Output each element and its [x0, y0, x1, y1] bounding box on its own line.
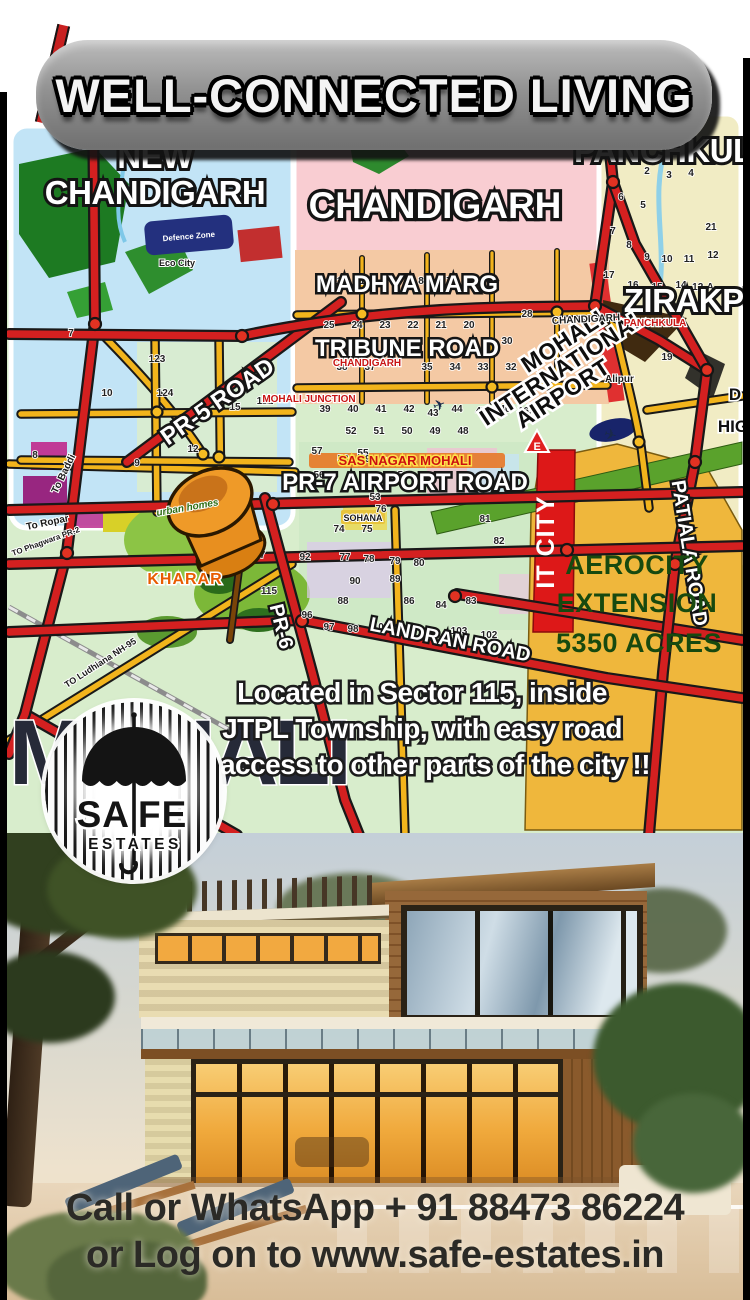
- sector-label: 4: [688, 168, 694, 179]
- balcony-fascia: [141, 1017, 649, 1029]
- sector-label: 79: [389, 556, 401, 567]
- sector-label: 5: [640, 200, 646, 211]
- house-clerestory-windows: [155, 933, 381, 964]
- sector-label: 81: [479, 514, 491, 525]
- sector-label: 90: [349, 576, 361, 587]
- sector-label: 22: [407, 320, 419, 331]
- sector-label: 24: [351, 320, 363, 331]
- sector-label: 8: [626, 240, 632, 251]
- sector-label: 21: [435, 320, 447, 331]
- poster: WELL-CONNECTED LIVING: [0, 0, 750, 1300]
- sector-label: 51: [373, 426, 385, 437]
- interior-sofa: [295, 1137, 369, 1167]
- sector-label: 86: [403, 596, 415, 607]
- sector-label: 10: [661, 254, 673, 265]
- sector-label: 25: [323, 320, 335, 331]
- house-lower-level: [145, 1059, 649, 1191]
- right-foliage: [633, 1093, 743, 1193]
- sector-label: 43: [427, 408, 439, 419]
- sector-label: 28: [521, 309, 533, 320]
- sector-label: 124: [157, 388, 174, 399]
- sector-label: 12: [707, 250, 719, 261]
- label-sohana: SOHANA: [343, 513, 383, 523]
- lower-glass-wall: [191, 1059, 563, 1191]
- label-highway-d: D: [729, 385, 741, 404]
- sector-label: 12: [187, 444, 199, 455]
- umbrella-icon: SA FE ESTATES: [71, 707, 197, 875]
- sector-label: 19: [661, 352, 673, 363]
- sector-label: 77: [339, 552, 351, 563]
- sector-label: 32: [505, 362, 517, 373]
- sector-label: 23: [379, 320, 391, 331]
- label-extension: EXTENSION: [557, 588, 718, 618]
- sector-label: 83: [465, 596, 477, 607]
- sector-label: 39: [319, 404, 331, 415]
- sector-label: 7: [68, 328, 74, 339]
- sector-label: 34: [449, 362, 461, 373]
- balcony-glass-railing: [141, 1029, 649, 1049]
- sector-label: 20: [463, 320, 475, 331]
- sector-label: 57: [311, 446, 323, 457]
- sector-label: 48: [457, 426, 469, 437]
- label-panchkula-small: PANCHKULA: [624, 318, 687, 329]
- contact-website: or Log on to www.safe-estates.in: [7, 1232, 743, 1279]
- house-photo: Call or WhatsApp + 91 88473 86224 or Log…: [7, 833, 743, 1300]
- logo-subtitle: ESTATES: [88, 836, 182, 853]
- sector-label: 88: [337, 596, 349, 607]
- page-title: WELL-CONNECTED LIVING: [55, 68, 692, 123]
- sector-label: 42: [403, 404, 415, 415]
- sector-label: 123: [149, 354, 166, 365]
- header-banner: WELL-CONNECTED LIVING: [36, 40, 712, 150]
- label-aerocity: AEROCITY: [565, 550, 709, 580]
- tree-foliage: [7, 951, 115, 1043]
- sector-label: 21: [705, 222, 717, 233]
- sector-label: 8: [32, 450, 38, 461]
- sector-label: 17: [603, 270, 615, 281]
- sector-label: 6: [618, 192, 624, 203]
- sector-label: 40: [347, 404, 359, 415]
- label-madhya-marg: MADHYA MARG: [316, 271, 498, 298]
- sector-label: 98: [347, 624, 359, 635]
- label-eco-city: Eco City: [159, 258, 195, 268]
- safe-estates-logo: SA FE ESTATES: [45, 702, 223, 880]
- sector-label: 97: [323, 622, 335, 633]
- sector-label: 96: [301, 610, 313, 621]
- label-acres: 5350 ACRES: [556, 628, 722, 658]
- e-sign-label: E: [534, 441, 541, 453]
- label-chandigarh-small: CHANDIGARH: [333, 358, 401, 369]
- sector-label: 78: [363, 554, 375, 565]
- house-corner-window: [401, 905, 643, 1021]
- caption-line-2: JTPL Township, with easy road: [222, 713, 622, 744]
- label-chandigarh: CHANDIGARH: [309, 185, 562, 226]
- sector-label: 9: [134, 458, 140, 469]
- sector-label: 11: [684, 254, 695, 265]
- sector-label: 82: [493, 536, 505, 547]
- label-mohali-junction: MOHALI JUNCTION: [262, 394, 355, 405]
- sector-label: 3: [666, 170, 672, 181]
- sector-label: 30: [501, 336, 513, 347]
- sector-label: 80: [413, 558, 425, 569]
- sector-label: 9: [644, 252, 650, 263]
- caption-line-1: Located in Sector 115, inside: [237, 677, 607, 708]
- house-balcony: [141, 1017, 649, 1059]
- label-new-chandigarh-2: CHANDIGARH: [45, 174, 266, 211]
- logo-name-left: SA: [77, 794, 130, 835]
- balcony-wood-band: [141, 1049, 649, 1059]
- sector-label: 44: [451, 404, 463, 415]
- sector-label: 35: [421, 362, 433, 373]
- label-it-city: IT CITY: [532, 495, 560, 588]
- sector-label: 75: [361, 524, 373, 535]
- logo-name-right: FE: [138, 794, 187, 835]
- sector-label: 74: [333, 524, 345, 535]
- contact-phone: Call or WhatsApp + 91 88473 86224: [7, 1185, 743, 1232]
- label-alipur: Alipur: [605, 374, 634, 385]
- label-kharar: KHARAR: [147, 571, 222, 588]
- sector-label: 92: [299, 552, 311, 563]
- sector-label: 49: [429, 426, 441, 437]
- sector-label: 33: [477, 362, 489, 373]
- label-pr7: PR-7 AIRPORT ROAD: [282, 469, 528, 496]
- sector-label: 50: [401, 426, 413, 437]
- caption-line-3: access to other parts of the city !!: [220, 749, 650, 780]
- sector-label: 10: [101, 388, 113, 399]
- sector-label: 84: [435, 600, 447, 611]
- contact-block: Call or WhatsApp + 91 88473 86224 or Log…: [7, 1185, 743, 1279]
- sector-label: 52: [345, 426, 357, 437]
- label-sas-nagar: SAS NAGAR MOHALI: [339, 453, 472, 468]
- sector-label: 41: [375, 404, 387, 415]
- right-border: [743, 58, 750, 1300]
- sector-label: 89: [389, 574, 401, 585]
- sector-label: 7: [610, 226, 616, 237]
- label-highway: HIG: [718, 417, 743, 436]
- left-border: [0, 92, 7, 1300]
- sector-label: 115: [261, 586, 278, 597]
